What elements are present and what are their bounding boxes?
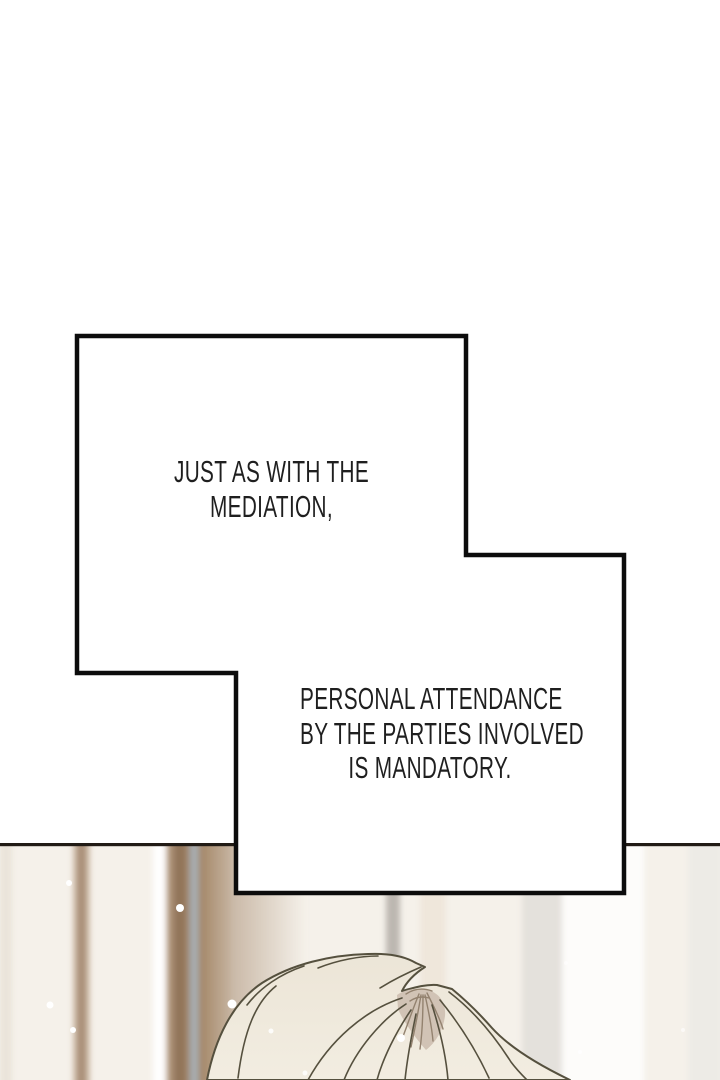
dialogue-line: MEDIATION, xyxy=(141,490,402,525)
speech-bubbles xyxy=(0,0,720,1080)
dialogue-line: IS MANDATORY. xyxy=(300,751,560,786)
speech-bubble-1-text: JUST AS WITH THE MEDIATION, xyxy=(141,455,402,524)
dialogue-line: BY THE PARTIES INVOLVED xyxy=(300,717,560,752)
speech-bubble-shape xyxy=(77,336,624,893)
speech-bubble-2-text: PERSONAL ATTENDANCE BY THE PARTIES INVOL… xyxy=(300,682,560,786)
dialogue-line: PERSONAL ATTENDANCE xyxy=(300,682,560,717)
dialogue-line: JUST AS WITH THE xyxy=(141,455,402,490)
comic-page: JUST AS WITH THE MEDIATION, PERSONAL ATT… xyxy=(0,0,720,1080)
